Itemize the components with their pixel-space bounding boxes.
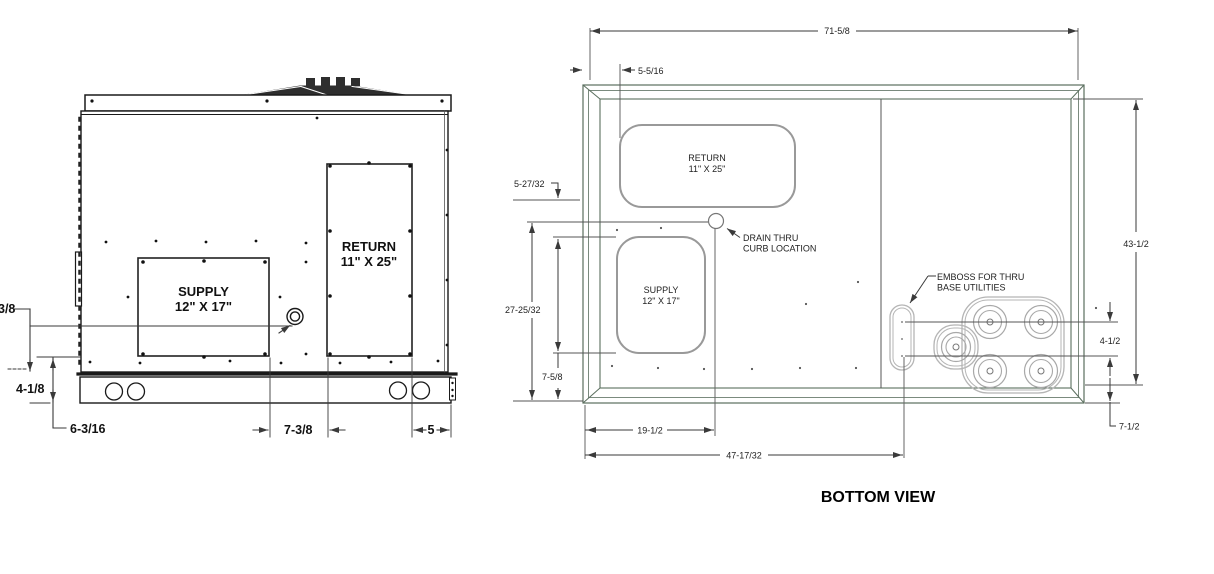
emboss-callout-line2: BASE UTILITIES <box>937 283 1006 293</box>
bottom-view-extension-lines <box>513 28 1143 459</box>
unit-top-cap <box>85 95 451 111</box>
dim-utility-x-label: 47-17/32 <box>726 451 762 461</box>
dim-duct-gap-label: 7-3/8 <box>284 423 313 437</box>
bottom-view: RETURN 11" X 25" SUPPLY 12" X 17" <box>505 26 1149 506</box>
base-pan-outline <box>583 85 1084 403</box>
dim-drain-height-label: 27-25/32 <box>505 305 541 315</box>
bottom-supply-opening <box>617 237 705 353</box>
technical-drawing-canvas: SUPPLY 12" X 17" RETURN 11" X 25" <box>0 0 1214 574</box>
bottom-view-title: BOTTOM VIEW <box>821 489 936 506</box>
return-size-label: 11" X 25" <box>341 254 397 269</box>
dim-drain-x-label: 19-1/2 <box>637 426 663 436</box>
side-view: SUPPLY 12" X 17" RETURN 11" X 25" <box>0 77 456 437</box>
dim-base-height-label: 4-1/8 <box>16 382 45 396</box>
bottom-supply-size: 12" X 17" <box>642 296 679 306</box>
drain-hole <box>709 214 724 229</box>
drain-callout-line1: DRAIN THRU <box>743 233 798 243</box>
supply-size-label: 12" X 17" <box>175 299 232 314</box>
bottom-supply-label: SUPPLY <box>644 285 679 295</box>
bottom-return-label: RETURN <box>688 153 726 163</box>
dim-utility-spacing-label: 4-1/2 <box>1100 336 1121 346</box>
emboss-utility-cluster <box>890 297 1064 393</box>
emboss-callout-line1: EMBOSS FOR THRU <box>937 272 1024 282</box>
return-label: RETURN <box>342 239 396 254</box>
drain-callout-line2: CURB LOCATION <box>743 244 816 254</box>
dim-partial-label: 3/8 <box>0 302 15 316</box>
dim-depth-label: 43-1/2 <box>1123 239 1149 249</box>
dim-utility-bottom-label: 7-1/2 <box>1119 422 1140 432</box>
dim-return-offset-label: 5-5/16 <box>638 66 664 76</box>
bottom-return-size: 11" X 25" <box>689 164 726 174</box>
hvac-dimension-drawing: SUPPLY 12" X 17" RETURN 11" X 25" <box>0 0 1214 574</box>
dim-supply-bottom-label: 7-5/8 <box>542 372 563 382</box>
dim-drain-offset-label: 5-27/32 <box>514 179 545 189</box>
dim-right-gap-label: 5 <box>428 423 435 437</box>
fan-hood <box>232 77 423 97</box>
bottom-view-dots <box>611 227 1097 370</box>
dim-left-offset-label: 6-3/16 <box>70 422 105 436</box>
dim-width-label: 71-5/8 <box>824 26 850 36</box>
supply-label: SUPPLY <box>178 284 229 299</box>
